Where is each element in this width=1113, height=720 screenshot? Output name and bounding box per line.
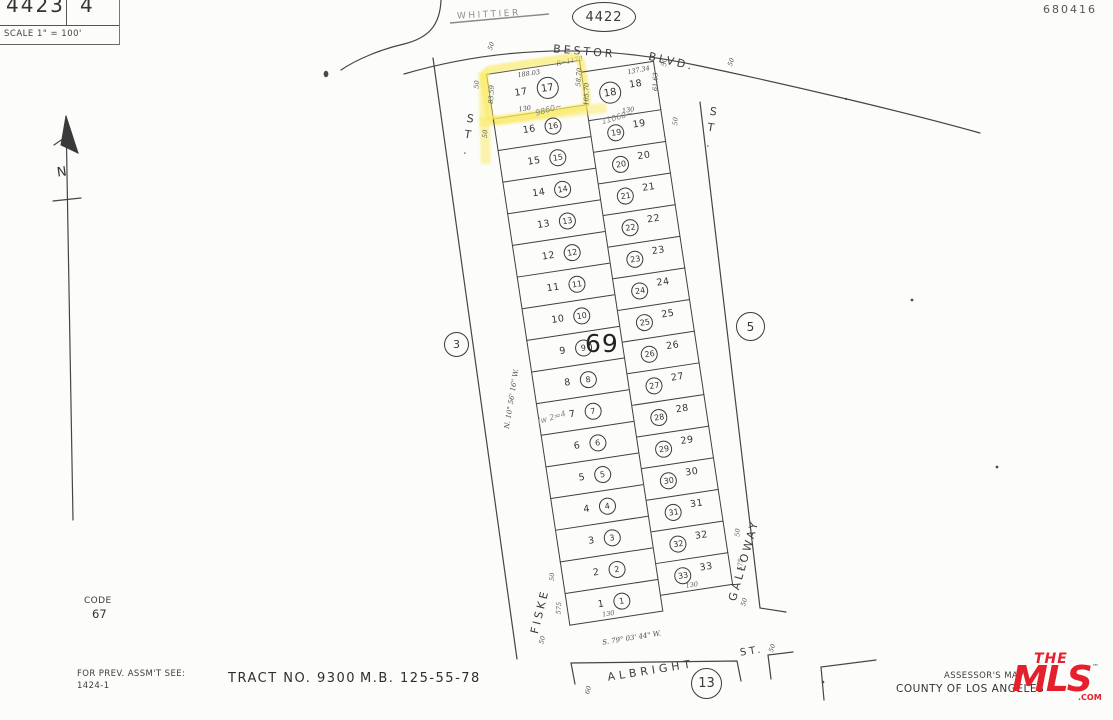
lot-27-number: 27: [670, 371, 685, 384]
lot-24-number: 24: [656, 276, 671, 289]
lot-12-number: 12: [541, 250, 556, 263]
scale-note: SCALE 1" = 100': [4, 29, 82, 39]
bestor-width-left: 50: [486, 41, 496, 52]
fiske-width: 50: [537, 635, 547, 645]
prev-assessment-ref: 1424-1: [77, 681, 110, 691]
corner-nw: [341, 0, 441, 70]
lot-10-circled-number: 10: [572, 306, 591, 325]
galloway-width: 50: [739, 597, 749, 607]
lot18-street-width: 50: [660, 58, 668, 67]
lot-33-edge-mark-right: 575: [736, 558, 745, 571]
lot-32-number: 32: [694, 529, 709, 542]
lot-1-edge-mark-bottom: 130: [602, 609, 616, 619]
lot-12-circled-number: 12: [563, 243, 582, 262]
lot-24-circled-number: 24: [630, 281, 649, 300]
lot-26-circled-number: 26: [640, 344, 659, 363]
lot-2-edge-mark-left: 50: [548, 572, 556, 581]
lot-26-number: 26: [665, 339, 680, 352]
lot-13-circled-number: 13: [558, 211, 577, 230]
albright-width-right: 50: [767, 643, 777, 654]
lot-7-edge-mark-hand: (w 2=4: [536, 409, 566, 426]
lot-19-edge-mark-right: 50: [671, 117, 679, 126]
adjacent-page-left-badge: 3: [444, 332, 469, 357]
albright-bracket-2: [768, 652, 793, 679]
lot-10-number: 10: [551, 313, 566, 326]
lot-30-circled-number: 30: [659, 471, 678, 490]
lot-30-number: 30: [685, 466, 700, 479]
map-book-reference: M.B. 125-55-78: [360, 671, 481, 686]
lot18-circled-number: 18: [598, 80, 623, 105]
tract-number-label: TRACT NO. 9300: [228, 671, 356, 686]
sheet-number-right: 4: [80, 0, 95, 17]
lot18-dim-right: 61.63: [652, 72, 660, 91]
sheet-divider: [66, 0, 67, 25]
lot-9-circled-number: 9: [574, 338, 593, 357]
north-arrow-tick: [53, 198, 81, 201]
albright-width-left: 60: [583, 685, 593, 695]
lot-23-circled-number: 23: [626, 250, 645, 269]
lot-22-circled-number: 22: [621, 218, 640, 237]
adjacent-page-bottom-badge: 13: [691, 668, 722, 699]
scale-row: SCALE 1" = 100': [0, 25, 119, 45]
lot-20-number: 20: [637, 149, 652, 162]
lot-8-circled-number: 8: [578, 370, 597, 389]
lot-3-number: 3: [587, 535, 595, 547]
lot-6-circled-number: 6: [588, 433, 607, 452]
code-label: CODE: [84, 596, 112, 606]
lot-20-circled-number: 20: [611, 155, 630, 174]
scale-box: 4423 4 SCALE 1" = 100': [0, 0, 120, 45]
lot-13-number: 13: [536, 218, 551, 231]
north-arrow-slash: [54, 136, 67, 145]
north-arrow-label: N: [56, 164, 68, 180]
lot-25-number: 25: [661, 308, 676, 321]
lot-21-number: 21: [641, 181, 656, 194]
albright-st-abbrev: ST.: [739, 644, 764, 659]
lot-8-number: 8: [564, 377, 572, 389]
lot-2-number: 2: [592, 567, 600, 579]
lot18-dim-left: 105.70: [582, 83, 591, 106]
lot-4-number: 4: [583, 503, 591, 515]
bearing-west: N. 10° 56' 16" W.: [503, 368, 520, 429]
bestor-width-right: 50: [726, 57, 736, 68]
adjacent-page-right-number: 5: [747, 320, 755, 334]
albright-street-name: ALBRIGHT: [607, 657, 696, 684]
lot18-dim-top: 137.34: [627, 64, 651, 76]
cutoff-street-label: WHITTIER: [457, 8, 521, 21]
lot-19-number: 19: [632, 118, 647, 131]
lot-16-circled-number: 16: [543, 116, 562, 135]
adjacent-page-right-badge: 5: [736, 312, 765, 341]
lot-4-circled-number: 4: [598, 497, 617, 516]
fiske-street-name: FISKE: [528, 588, 552, 636]
lot-31-circled-number: 31: [664, 503, 683, 522]
lot-5-circled-number: 5: [593, 465, 612, 484]
lot-6-number: 6: [573, 440, 581, 452]
lot-28-number: 28: [675, 402, 690, 415]
adjacent-page-left-number: 3: [453, 338, 460, 351]
lot-28-circled-number: 28: [650, 408, 669, 427]
lot-5-number: 5: [578, 472, 586, 484]
galloway-st-abbrev: ST.: [700, 104, 720, 153]
lot-15-circled-number: 15: [548, 148, 567, 167]
lot-22-number: 22: [646, 213, 661, 226]
lot-29-circled-number: 29: [654, 439, 673, 458]
handwritten-doc-number: 680416: [1043, 3, 1097, 16]
adjacent-page-top-number: 4422: [585, 10, 622, 25]
fiske-st-abbrev: ST.: [457, 111, 477, 160]
albright-bracket-3: [821, 660, 876, 700]
lot-15-number: 15: [527, 155, 542, 168]
lot-7-circled-number: 7: [583, 402, 602, 421]
lot-27-circled-number: 27: [645, 376, 664, 395]
sheet-number-left: 4423: [6, 0, 65, 17]
lot-1-number: 1: [597, 598, 605, 610]
lot18-number: 18: [628, 77, 643, 90]
sheet-number-row: 4423 4: [0, 0, 119, 26]
lot-14-number: 14: [532, 187, 547, 200]
lot-25-circled-number: 25: [635, 313, 654, 332]
mls-logo-tm: ™: [1092, 663, 1099, 671]
prev-assessment-label: FOR PREV. ASSM'T SEE:: [77, 669, 185, 679]
lot-14-circled-number: 14: [553, 180, 572, 199]
mls-logo-com: .COM: [1078, 693, 1102, 702]
lot-11-circled-number: 11: [567, 275, 586, 294]
lot17-street-width: 50: [472, 80, 480, 89]
lot-21-circled-number: 21: [616, 186, 635, 205]
lot-11-number: 11: [546, 281, 561, 294]
lot-19-circled-number: 19: [607, 123, 626, 142]
adjacent-page-top-badge: 4422: [572, 2, 636, 32]
tract-grid: 188.03 83.59 58.70 130 9860~ 50 17 17 16…: [486, 49, 652, 74]
lot-2-circled-number: 2: [607, 560, 626, 579]
assessor-map-page: 4423 4 SCALE 1" = 100' WHITTIER 4422 680…: [0, 0, 1113, 720]
lot17-number: 17: [514, 86, 529, 99]
lot17-dim-left: 83.59: [487, 85, 496, 104]
lot-31-number: 31: [689, 497, 704, 510]
lot-32-circled-number: 32: [669, 534, 688, 553]
lot-16-edge-mark-left: 50: [481, 129, 489, 138]
code-value: 67: [92, 607, 107, 621]
lot-1-circled-number: 1: [612, 591, 631, 610]
lot-3-circled-number: 3: [602, 528, 621, 547]
lot-23-number: 23: [651, 244, 666, 257]
lot-33-number: 33: [699, 561, 714, 574]
north-arrow-head: [61, 116, 78, 153]
lot-29-number: 29: [680, 434, 695, 447]
adjacent-page-bottom-number: 13: [698, 676, 715, 691]
lot-32-edge-mark-right: 50: [733, 528, 741, 537]
mls-logo: THE MLS ™ .COM: [1012, 651, 1104, 709]
bearing-south: S. 79° 03' 44" W.: [602, 629, 662, 646]
lot-33-edge-mark-bottom: 130: [685, 580, 699, 590]
lot-16-number: 16: [522, 123, 537, 136]
lot-9-number: 9: [559, 345, 567, 357]
lot-7-number: 7: [568, 408, 576, 420]
lot-1-edge-mark-left: 575: [555, 602, 564, 615]
